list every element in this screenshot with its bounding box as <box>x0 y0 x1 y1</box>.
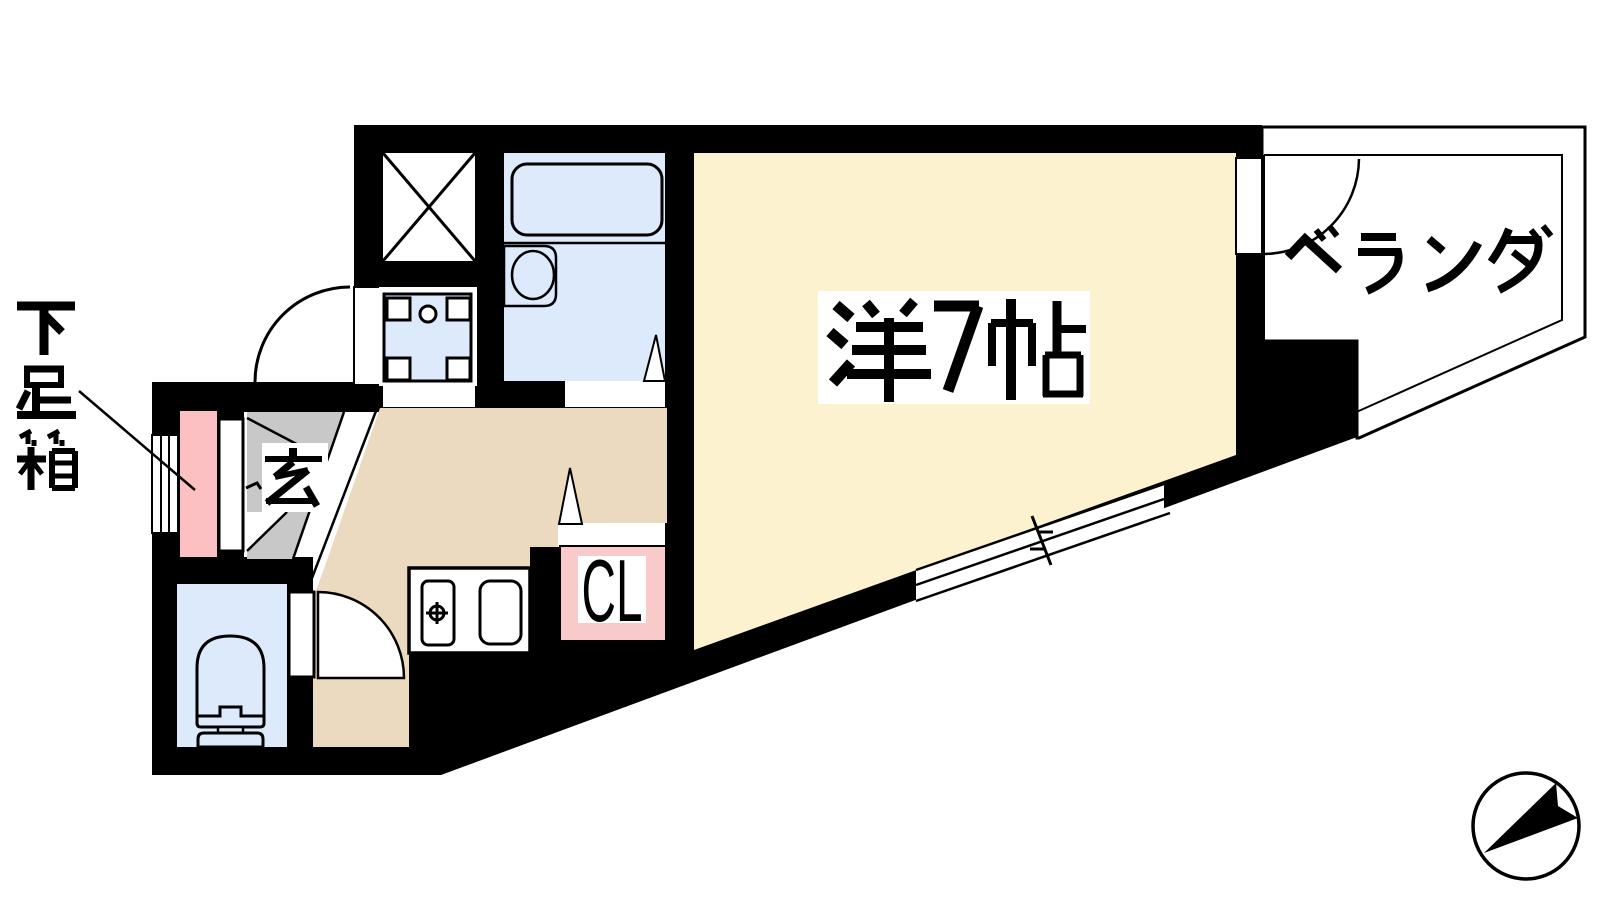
svg-text:CL: CL <box>582 541 643 640</box>
